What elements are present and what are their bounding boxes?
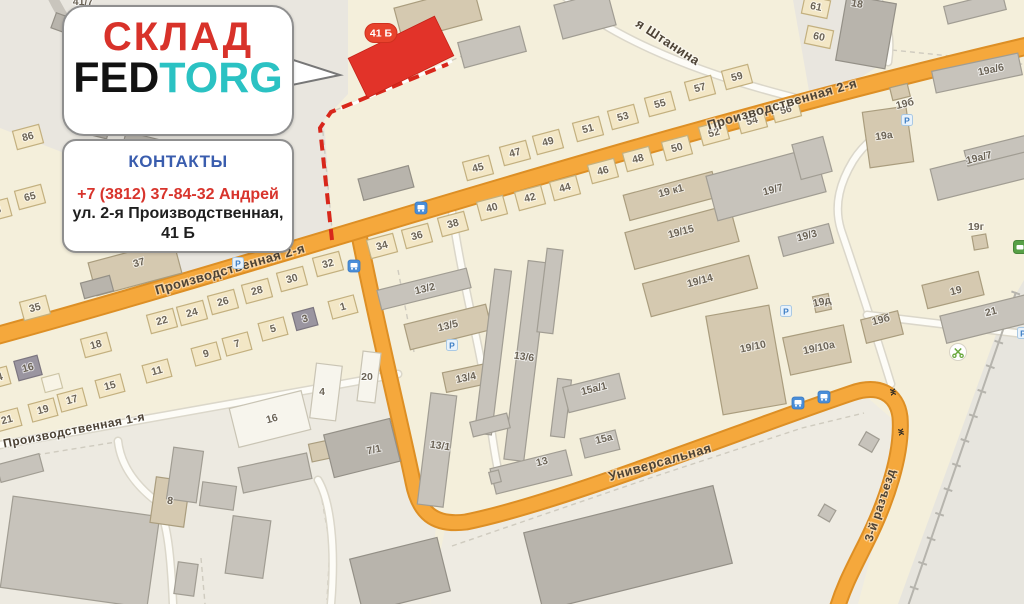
bus-stop-icon bbox=[348, 260, 360, 272]
bus-icon-wheel bbox=[418, 210, 420, 212]
building bbox=[458, 26, 527, 68]
contacts-title: КОНТАКТЫ bbox=[64, 152, 292, 172]
address-badge-label: 41 Б bbox=[370, 28, 393, 40]
callout-pointer bbox=[287, 52, 347, 92]
warehouse-callout: СКЛАД FEDTORG bbox=[62, 5, 294, 136]
building bbox=[836, 0, 897, 69]
contacts-card: КОНТАКТЫ +7 (3812) 37-84-32 Андрей ул. 2… bbox=[62, 139, 294, 253]
parking-icon: P bbox=[781, 306, 792, 317]
building bbox=[944, 0, 1007, 24]
parking-icon: P bbox=[233, 258, 244, 269]
contacts-phone: +7 (3812) 37-84-32 Андрей bbox=[64, 186, 292, 204]
parking-icon-letter: P bbox=[904, 116, 910, 126]
building-label: 4 bbox=[319, 386, 325, 398]
contacts-address-line1: ул. 2-я Производственная, bbox=[64, 204, 292, 223]
bus-icon-body bbox=[418, 205, 425, 210]
building bbox=[972, 234, 988, 250]
bus-icon-wheel bbox=[422, 210, 424, 212]
building bbox=[470, 413, 511, 437]
building bbox=[706, 305, 786, 415]
bus-stop-icon bbox=[415, 202, 427, 214]
building bbox=[0, 198, 12, 222]
parking-icon-letter: P bbox=[235, 259, 241, 269]
contacts-address-line2: 41 Б bbox=[64, 224, 292, 243]
bus-icon-body bbox=[821, 394, 828, 399]
building bbox=[358, 166, 414, 201]
building-label: 19а bbox=[874, 129, 893, 143]
building bbox=[174, 562, 198, 596]
building bbox=[554, 0, 616, 39]
parking-icon: P bbox=[902, 115, 913, 126]
shop-icon bbox=[1014, 241, 1024, 254]
building-label: 19г bbox=[968, 221, 985, 233]
brand-fed: FED bbox=[73, 54, 159, 102]
bus-icon-wheel bbox=[825, 399, 827, 401]
bus-icon-wheel bbox=[821, 399, 823, 401]
hairdresser-icon bbox=[950, 344, 967, 361]
building bbox=[489, 470, 502, 484]
bus-icon-body bbox=[351, 263, 358, 268]
building bbox=[225, 516, 271, 579]
map-screenshot: 4547495153555759616034363840424446485052… bbox=[0, 0, 1024, 604]
parking-icon-letter: P bbox=[783, 307, 789, 317]
building bbox=[199, 482, 236, 510]
bus-icon-wheel bbox=[351, 268, 353, 270]
parking-icon-letter: P bbox=[449, 341, 455, 351]
bus-icon-wheel bbox=[355, 268, 357, 270]
brand-logo: FEDTORG bbox=[64, 58, 292, 99]
callout-title: СКЛАД bbox=[64, 16, 292, 58]
brand-torg: TORG bbox=[159, 54, 282, 102]
bus-stop-icon bbox=[792, 397, 804, 409]
bus-stop-icon bbox=[818, 391, 830, 403]
building bbox=[41, 373, 62, 392]
building-label: 20 bbox=[361, 371, 373, 383]
parking-icon-letter: P bbox=[1020, 329, 1024, 339]
shop-icon-glyph bbox=[1017, 245, 1024, 250]
callout-pointer-shape bbox=[287, 58, 340, 86]
bus-icon-body bbox=[795, 400, 802, 405]
parking-icon: P bbox=[447, 340, 458, 351]
bus-icon-wheel bbox=[795, 405, 797, 407]
parking-icon: P bbox=[1018, 328, 1024, 339]
bus-icon-wheel bbox=[799, 405, 801, 407]
